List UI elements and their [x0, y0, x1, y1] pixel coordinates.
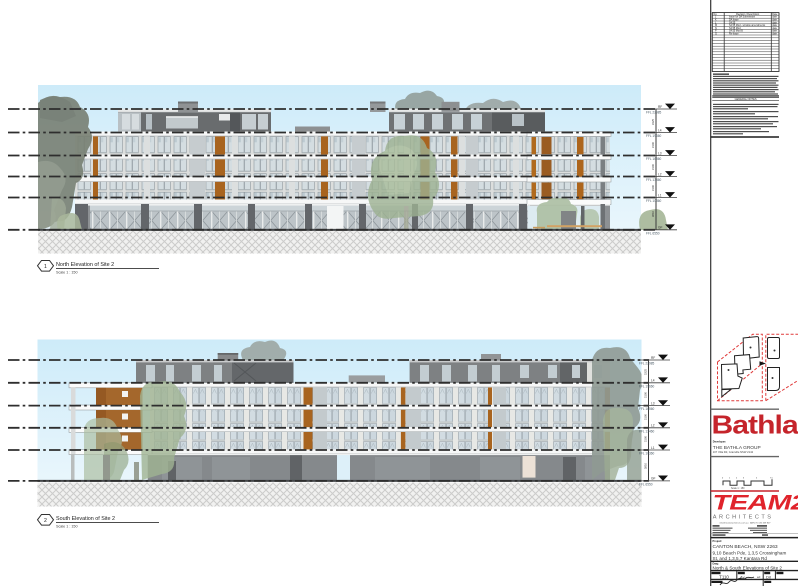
svg-text:FFL 19660: FFL 19660 — [646, 134, 662, 138]
svg-text:ed: ed — [757, 575, 761, 579]
svg-text:L1: L1 — [651, 446, 655, 450]
svg-text:FFL 16560: FFL 16560 — [646, 157, 662, 161]
svg-text:info@team2architects.com.au: info@team2architects.com.au ABN 70 135 3… — [720, 522, 772, 525]
svg-text:Re-Issue: Re-Issue — [729, 33, 739, 36]
svg-text:L4: L4 — [651, 379, 655, 383]
svg-text:3100: 3100 — [651, 184, 655, 191]
svg-text:ARCHITECTS: ARCHITECTS — [713, 514, 774, 520]
svg-text:3100: 3100 — [644, 435, 648, 442]
svg-text:GENERAL NOTES: GENERAL NOTES — [735, 97, 757, 101]
svg-text:FFL 22985: FFL 22985 — [646, 111, 662, 115]
svg-text:L4: L4 — [658, 128, 662, 132]
svg-text:FFL 16560: FFL 16560 — [639, 407, 655, 411]
svg-text:RF: RF — [658, 105, 662, 109]
svg-text:GF: GF — [658, 226, 662, 230]
svg-text:FFL 13460: FFL 13460 — [646, 178, 662, 182]
svg-text:date: date — [772, 33, 777, 36]
svg-text:FFL 10360: FFL 10360 — [639, 452, 655, 456]
svg-text:Scale 1 : 150: Scale 1 : 150 — [56, 270, 78, 274]
svg-text:Developer:: Developer: — [713, 440, 727, 444]
svg-text:FFL 19660: FFL 19660 — [639, 384, 655, 388]
svg-text:L1: L1 — [658, 193, 662, 197]
svg-text:T110: T110 — [719, 574, 729, 579]
svg-text:St, and 1,3,5,7 Kantara Rd: St, and 1,3,5,7 Kantara Rd — [713, 556, 768, 561]
svg-text:TEAM2: TEAM2 — [713, 491, 798, 515]
svg-text:3100: 3100 — [644, 413, 648, 420]
svg-text:107 Villa Rd, Granville NSW 21: 107 Villa Rd, Granville NSW 2142 — [713, 450, 754, 454]
svg-text:FFL 6550: FFL 6550 — [639, 483, 653, 487]
svg-text:3810: 3810 — [651, 210, 655, 217]
svg-text:Project:: Project: — [713, 539, 723, 543]
svg-text:North & South Elevations of Si: North & South Elevations of Site 2 — [713, 565, 783, 570]
svg-text:South Elevation of Site 2: South Elevation of Site 2 — [56, 516, 115, 522]
svg-text:Scale 1 : 150: Scale 1 : 150 — [56, 524, 78, 528]
svg-text:Q: Q — [715, 33, 717, 36]
svg-text:Bathla: Bathla — [712, 411, 798, 439]
svg-text:3325: 3325 — [644, 368, 648, 375]
svg-text:L2: L2 — [658, 172, 662, 176]
svg-text:L3: L3 — [658, 151, 662, 155]
svg-text:FFL 6550: FFL 6550 — [646, 231, 660, 235]
svg-text:3100: 3100 — [651, 141, 655, 148]
svg-text:Scale 1 : 150: Scale 1 : 150 — [731, 488, 745, 490]
svg-text:FFL 13460: FFL 13460 — [639, 429, 655, 433]
svg-text:9,10 Beach Pde, 1,3,5 Crossing: 9,10 Beach Pde, 1,3,5 Crossingham — [713, 551, 787, 556]
svg-text:1: 1 — [44, 264, 47, 270]
svg-text:North Elevation of Site 2: North Elevation of Site 2 — [56, 262, 114, 268]
svg-text:3100: 3100 — [651, 163, 655, 170]
svg-text:L2: L2 — [651, 424, 655, 428]
svg-text:2: 2 — [44, 518, 47, 524]
svg-text:THE BATHLA GROUP: THE BATHLA GROUP — [713, 445, 761, 451]
svg-text:RF: RF — [651, 356, 655, 360]
svg-text:L3: L3 — [651, 401, 655, 405]
svg-text:CANTON BEACH, NSW 2263: CANTON BEACH, NSW 2263 — [713, 544, 778, 550]
svg-text:3100: 3100 — [644, 391, 648, 398]
svg-text:FFL 22985: FFL 22985 — [639, 362, 655, 366]
svg-text:3325: 3325 — [651, 118, 655, 125]
svg-text:FFL 10360: FFL 10360 — [646, 199, 662, 203]
svg-text:GF: GF — [651, 477, 655, 481]
svg-text:Drl: Drl — [766, 574, 771, 579]
svg-text:3810: 3810 — [644, 462, 648, 469]
